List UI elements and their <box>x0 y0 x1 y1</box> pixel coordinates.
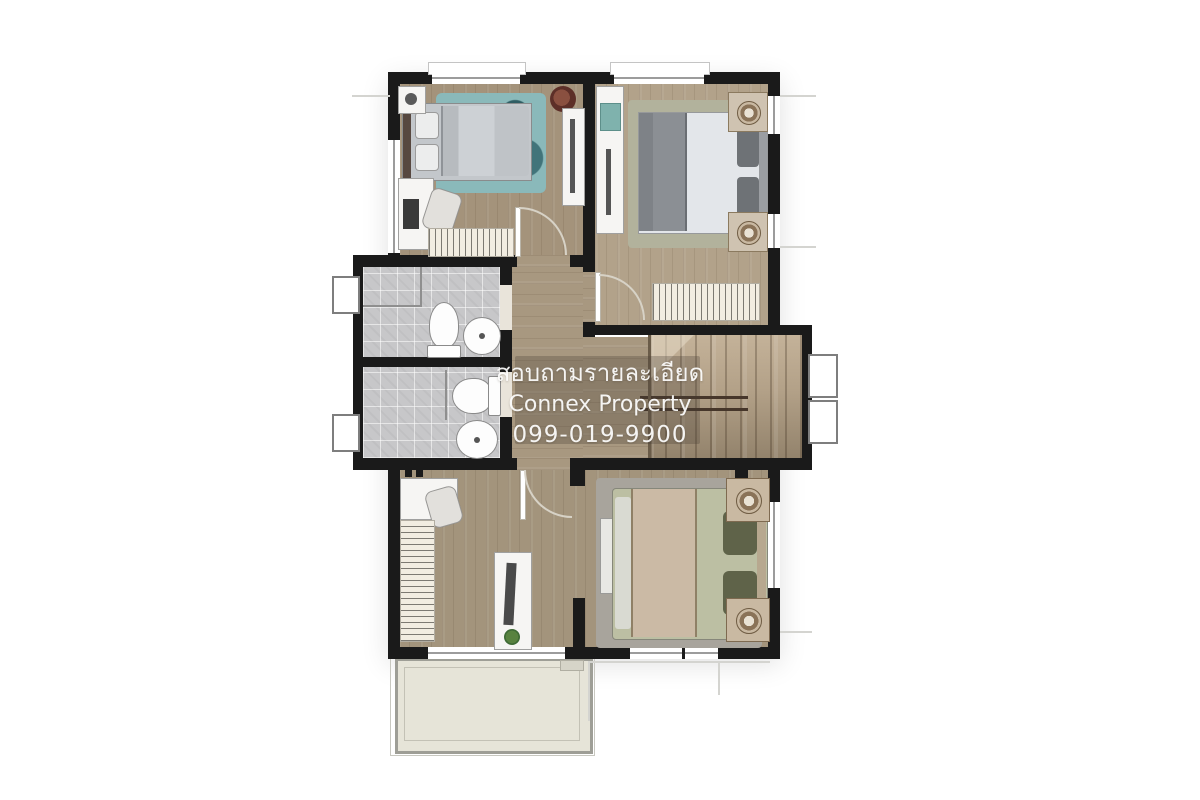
cabinet-slit <box>570 119 575 193</box>
watermark-line-thai: สอบถามรายละเอียด <box>440 358 760 389</box>
wardrobe-bedroom2 <box>652 283 760 321</box>
door-gap-bottom-room <box>517 458 570 470</box>
plant-small <box>504 629 520 645</box>
lamp <box>736 488 762 514</box>
projection-line <box>352 95 390 97</box>
bed-1-pillow <box>415 112 439 139</box>
projection-line <box>588 661 770 663</box>
wardrobe-dressing <box>400 520 435 642</box>
door-gap-bedroom2 <box>583 272 595 322</box>
sink-top-bath <box>463 317 501 355</box>
nightstand <box>728 92 768 132</box>
door-gap-bedroom1 <box>517 255 570 267</box>
projection-line <box>780 631 812 633</box>
wall-bath-bottom <box>353 458 517 470</box>
window-bedroom1-top <box>432 72 520 84</box>
master-bed-blanket <box>631 489 697 637</box>
toilet-tank <box>427 345 461 358</box>
door-gap-bath-top <box>500 285 512 330</box>
window-bedroom2-top <box>614 72 704 84</box>
balcony-step <box>560 660 584 671</box>
wall-closet-divider <box>573 598 585 647</box>
bed-1-headboard <box>403 104 411 178</box>
bed-1 <box>402 103 532 181</box>
closet-slit <box>606 149 611 215</box>
shower-screen <box>363 305 420 307</box>
watermark: สอบถามรายละเอียด Connex Property 099-019… <box>440 358 760 451</box>
closet-bedroom2 <box>596 86 624 234</box>
master-bed-mattress-edge <box>615 497 631 629</box>
projection-line <box>718 661 720 695</box>
window-bedroom2-right-a <box>768 96 780 134</box>
nightstand <box>726 598 770 642</box>
window-master-bottom-b <box>685 647 718 659</box>
bed-1-pillow <box>415 144 439 171</box>
sink-drain <box>479 333 485 339</box>
wall-stub-door-a <box>570 470 585 486</box>
tv <box>503 563 516 625</box>
lamp <box>737 221 761 245</box>
door-pivot <box>416 470 423 477</box>
laptop <box>403 199 419 229</box>
door-pivot <box>405 470 412 477</box>
toilet-top-bath <box>429 302 459 348</box>
bed-1-duvet <box>441 106 529 176</box>
bed-2-blanket <box>639 113 687 231</box>
projection-line <box>780 95 816 97</box>
stair-window-box <box>808 354 838 398</box>
storage-box-teal <box>600 103 621 131</box>
speaker <box>398 86 426 114</box>
window-master-bottom-a <box>630 647 682 659</box>
wall-left-lower <box>388 467 400 659</box>
projection-line <box>780 246 816 248</box>
lamp <box>736 608 762 634</box>
balcony-inner-line <box>404 667 580 741</box>
nightstand <box>726 478 770 522</box>
stair-window-box <box>808 400 838 444</box>
wardrobe-bedroom1 <box>428 228 514 257</box>
projection-line <box>588 661 590 721</box>
cabinet-bedroom1 <box>562 108 585 206</box>
floor-plan-canvas: สอบถามรายละเอียด Connex Property 099-019… <box>0 0 1200 800</box>
bathroom-window-box <box>332 276 360 314</box>
shower-screen <box>420 267 422 307</box>
watermark-line-brand: Connex Property <box>440 389 760 420</box>
nightstand <box>728 212 768 252</box>
lamp <box>737 101 761 125</box>
bathroom-window-box <box>332 414 360 452</box>
tv-console <box>494 552 532 650</box>
wall-lower-horizontal <box>570 458 812 470</box>
speaker-cone <box>405 93 417 105</box>
window-bedroom2-right-b <box>768 214 780 248</box>
watermark-line-phone: 099-019-9900 <box>440 420 760 451</box>
